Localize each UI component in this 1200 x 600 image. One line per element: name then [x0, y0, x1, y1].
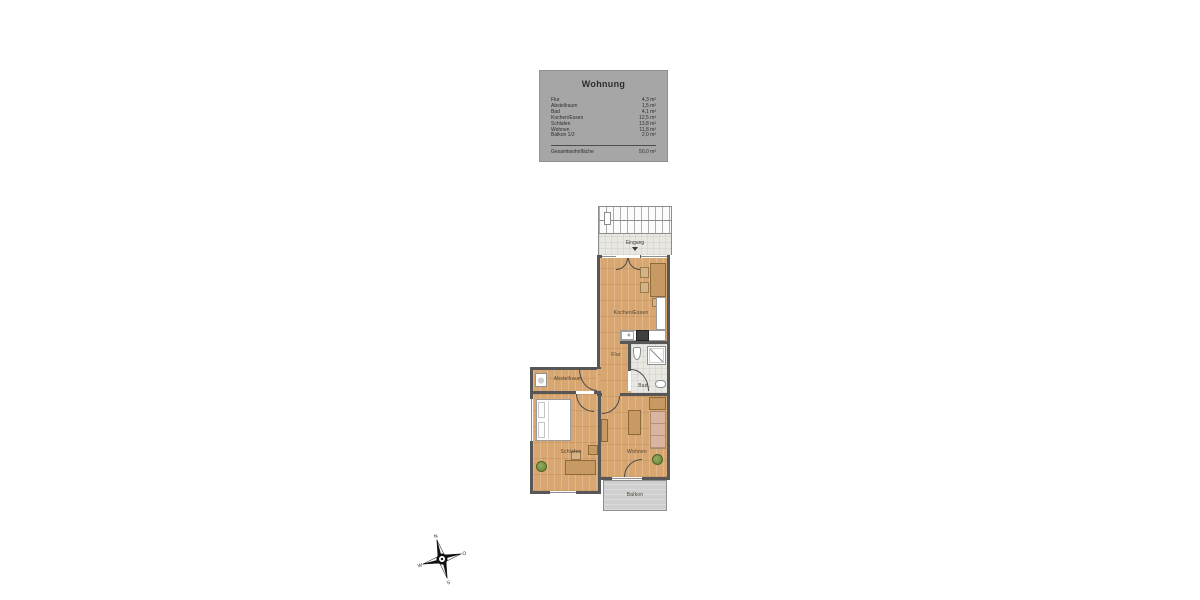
wall: [530, 391, 576, 394]
side-table: [588, 445, 598, 455]
room-label-hall: Flur: [611, 352, 620, 358]
room-label-bath: Bad: [638, 383, 648, 389]
pillow: [538, 422, 545, 438]
room-label-living: Wohnen: [627, 449, 647, 455]
floorplan-canvas: Wohnung Flur 4,3 m² Abstellraum 1,5 m² B…: [0, 0, 1200, 600]
room-label-balcony: Balkon: [627, 492, 644, 498]
bed-split-line: [548, 401, 549, 439]
area-legend: Wohnung Flur 4,3 m² Abstellraum 1,5 m² B…: [539, 70, 668, 162]
legend-divider: [551, 145, 656, 146]
plant-icon: [536, 461, 547, 472]
kitchen-window: [641, 255, 667, 258]
washbasin: [655, 380, 666, 388]
plant-icon: [652, 454, 663, 465]
dining-table: [650, 263, 666, 297]
legend-row-label: Balkon 1/2: [551, 133, 575, 139]
legend-total-row: Gesamtwohnfläche 50,0 m²: [540, 149, 667, 155]
legend-title: Wohnung: [540, 79, 667, 89]
compass-rose: N O S W: [416, 531, 468, 587]
floor-plan: Eingang: [528, 203, 678, 515]
compass-south-label: S: [446, 580, 451, 587]
coffee-table: [628, 410, 641, 435]
shower: [647, 346, 666, 365]
desk: [565, 460, 596, 475]
entrance-arrow-icon: [632, 247, 638, 251]
wall: [628, 344, 631, 371]
entrance-corridor: Eingang: [598, 234, 672, 255]
bedroom-window-west: [530, 399, 533, 441]
entrance-label: Eingang: [626, 240, 644, 246]
room-label-storage: Abstellraum: [554, 376, 583, 382]
room-label-kitchen: Kochen/Essen: [614, 310, 649, 316]
compass-north-label: N: [434, 533, 439, 540]
bed: [536, 399, 571, 441]
chair: [640, 282, 649, 293]
sideboard: [601, 419, 608, 442]
staircase: [598, 206, 672, 234]
wall-opening: [597, 369, 601, 391]
compass-east-label: O: [462, 551, 467, 558]
sofa: [650, 411, 666, 449]
armchair: [649, 397, 666, 410]
legend-total-label: Gesamtwohnfläche: [551, 149, 594, 155]
legend-row-value: 2,0 m²: [642, 133, 656, 139]
chair: [640, 267, 649, 278]
wall: [594, 391, 601, 394]
kitchen-counter: [656, 297, 666, 330]
bedroom-window-south: [550, 491, 576, 494]
kitchen-window: [602, 255, 616, 258]
shower-tray: [649, 348, 664, 363]
legend-total-value: 50,0 m²: [639, 149, 656, 155]
stove: [636, 330, 649, 341]
room-label-bedroom: Schlafen: [560, 449, 581, 455]
compass-west-label: W: [417, 562, 423, 569]
kitchen-sink: [621, 331, 634, 340]
shaft: [604, 212, 611, 225]
pillow: [538, 402, 545, 418]
washing-machine: [535, 373, 547, 387]
wall: [620, 393, 669, 396]
legend-row: Balkon 1/2 2,0 m²: [540, 133, 667, 139]
